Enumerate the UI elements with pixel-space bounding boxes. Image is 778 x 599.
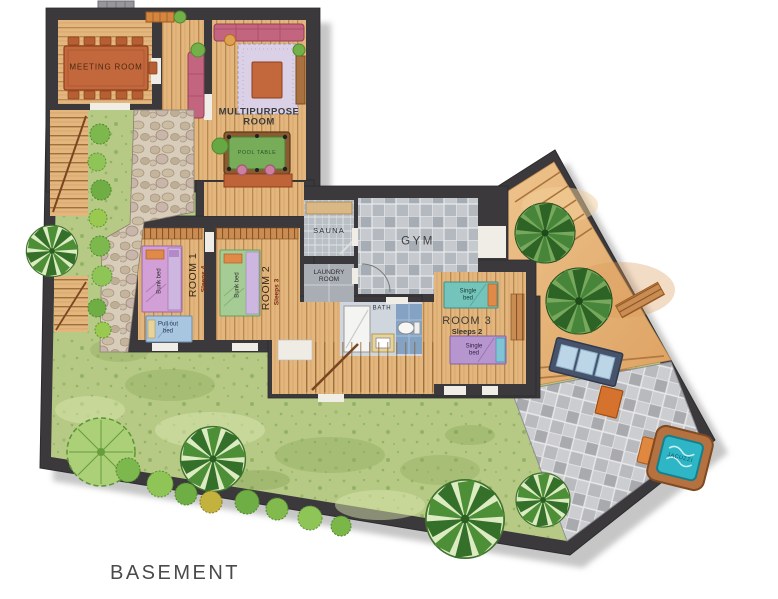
toilet bbox=[398, 322, 414, 334]
wardrobe bbox=[216, 228, 298, 239]
desk-chair bbox=[237, 165, 247, 175]
room1-bunk-bed bbox=[142, 246, 182, 312]
coffee-table bbox=[252, 62, 282, 98]
wall-planter bbox=[146, 11, 186, 23]
palm-tree bbox=[515, 473, 571, 527]
exterior-staircase bbox=[50, 110, 88, 216]
desk bbox=[224, 174, 292, 187]
room2-bunk-bed bbox=[220, 250, 260, 316]
palm-tree bbox=[180, 427, 247, 492]
palm-tree bbox=[425, 480, 506, 558]
wardrobe bbox=[511, 294, 524, 340]
console bbox=[296, 56, 305, 104]
wardrobe bbox=[140, 228, 202, 239]
room3-single-bed-2 bbox=[450, 336, 506, 364]
palm-tree bbox=[26, 225, 79, 276]
courtyard-palm bbox=[545, 268, 613, 334]
floor-plan-drawing bbox=[0, 0, 778, 599]
desk-chair bbox=[265, 165, 275, 175]
mp-hall-wall bbox=[204, 20, 212, 106]
floor-plan-canvas: MEETING ROOM MULTIPURPOSE ROOM POOL TABL… bbox=[0, 0, 778, 599]
meeting-room bbox=[64, 37, 157, 99]
stool bbox=[225, 35, 236, 46]
room3-single-bed-1 bbox=[444, 282, 498, 308]
sofa-left bbox=[188, 52, 204, 118]
pullout-bed bbox=[146, 316, 192, 342]
courtyard-palm bbox=[514, 203, 576, 263]
meeting-table bbox=[64, 46, 148, 90]
exterior-staircase-lower bbox=[54, 276, 88, 332]
pool-table bbox=[224, 132, 290, 174]
